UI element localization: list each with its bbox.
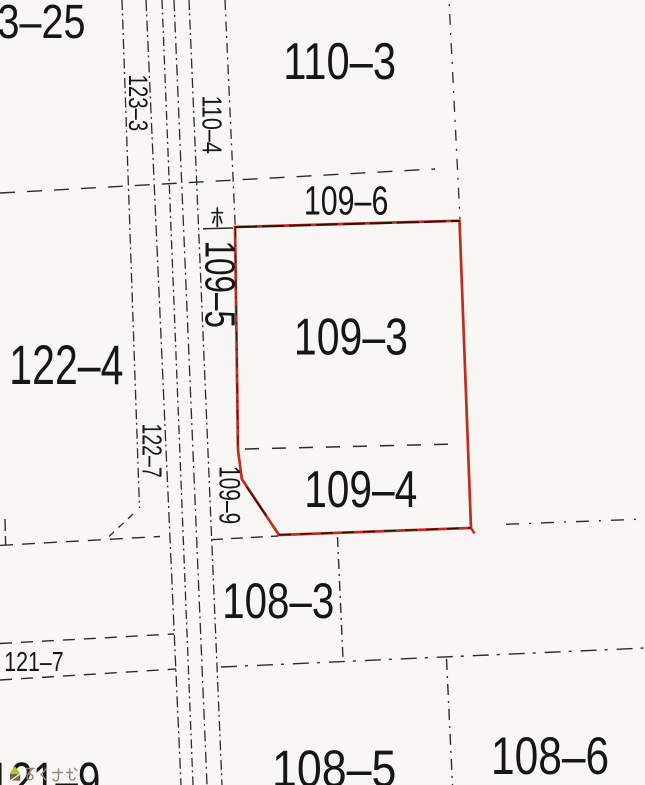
svg-text:122–7: 122–7 bbox=[136, 424, 167, 478]
svg-text:123–3: 123–3 bbox=[122, 75, 152, 132]
svg-text:109–5: 109–5 bbox=[196, 241, 244, 329]
svg-text:109–6: 109–6 bbox=[304, 178, 388, 223]
svg-text:110–4: 110–4 bbox=[196, 96, 227, 154]
svg-text:122–4: 122–4 bbox=[9, 335, 123, 397]
svg-text:123–25: 123–25 bbox=[0, 0, 85, 49]
svg-text:108–6: 108–6 bbox=[491, 728, 609, 785]
svg-text:108–3: 108–3 bbox=[222, 573, 334, 629]
svg-text:121–7: 121–7 bbox=[4, 646, 63, 677]
svg-text:110–3: 110–3 bbox=[283, 32, 396, 90]
svg-text:109–9: 109–9 bbox=[213, 466, 245, 524]
svg-text:108–5: 108–5 bbox=[272, 740, 396, 785]
svg-text:109–3: 109–3 bbox=[294, 308, 408, 366]
svg-text:109–4: 109–4 bbox=[304, 460, 417, 518]
